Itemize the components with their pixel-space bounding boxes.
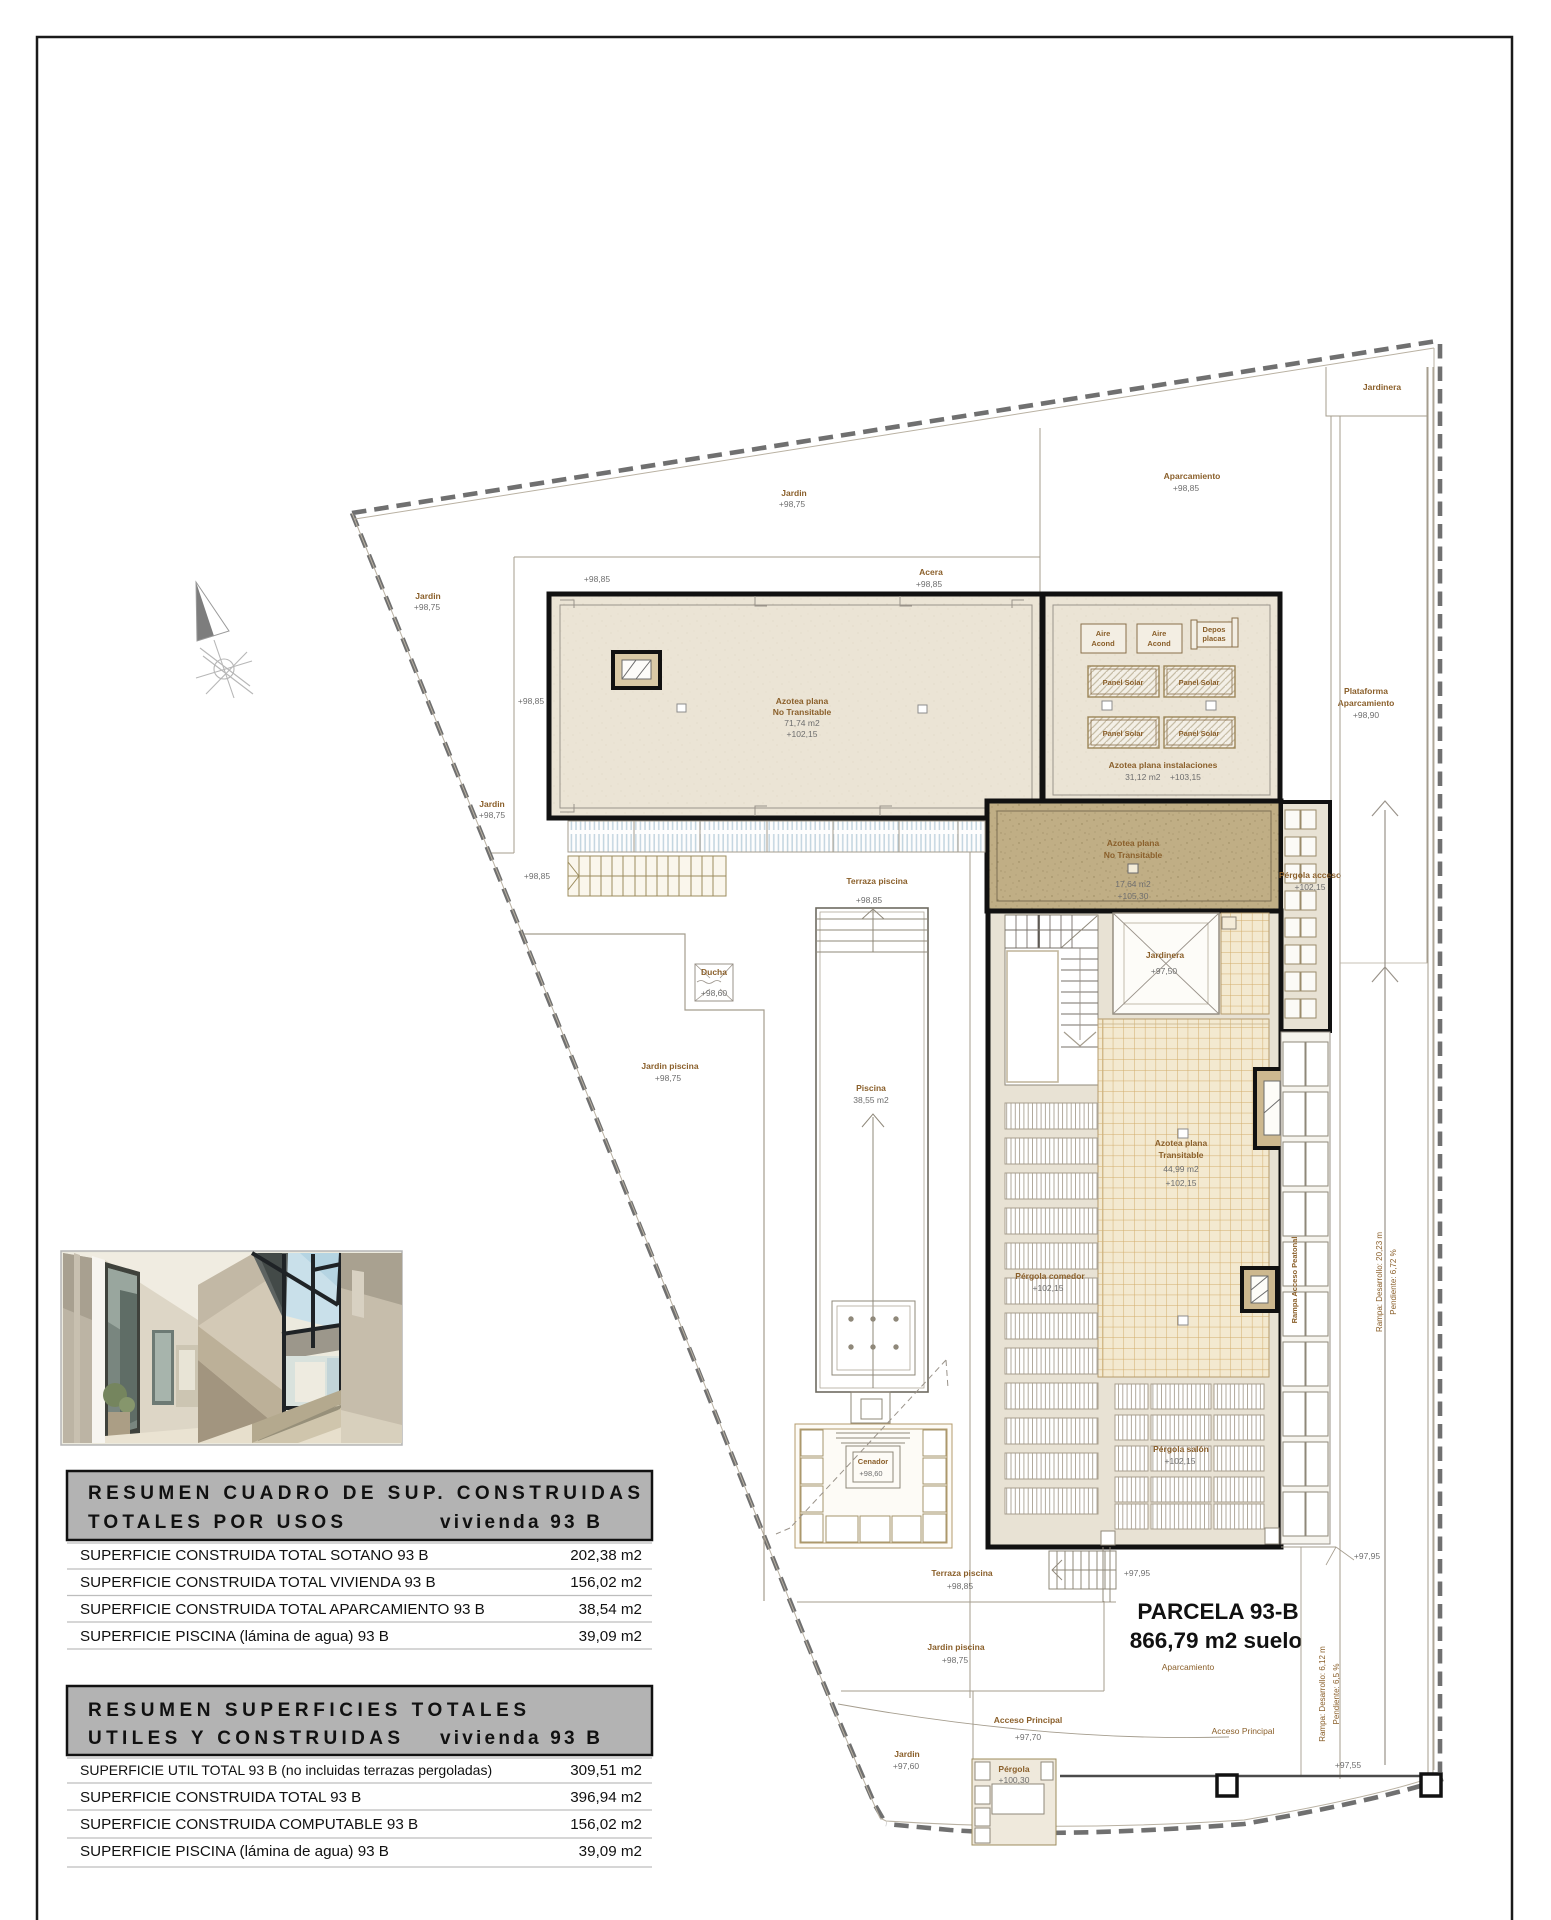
svg-text:38,54 m2: 38,54 m2 <box>579 1601 642 1618</box>
svg-text:+97,70: +97,70 <box>1015 1732 1042 1742</box>
svg-text:Jardinera: Jardinera <box>1363 382 1402 392</box>
svg-text:Ducha: Ducha <box>701 967 727 977</box>
svg-text:Depos: Depos <box>1203 625 1226 634</box>
svg-text:866,79 m2 suelo: 866,79 m2 suelo <box>1130 1628 1303 1653</box>
svg-text:Aparcamiento: Aparcamiento <box>1338 698 1395 708</box>
svg-text:PARCELA 93-B: PARCELA 93-B <box>1137 1599 1298 1624</box>
svg-text:Terraza piscina: Terraza piscina <box>931 1568 993 1578</box>
svg-text:Panel Solar: Panel Solar <box>1103 678 1144 687</box>
svg-text:Aparcamiento: Aparcamiento <box>1162 1662 1215 1672</box>
svg-text:+98,75: +98,75 <box>779 499 806 509</box>
svg-text:31,12 m2 +103,15: 31,12 m2 +103,15 <box>1125 772 1201 782</box>
svg-text:+97,55: +97,55 <box>1335 1760 1362 1770</box>
svg-text:Jardin: Jardin <box>479 799 505 809</box>
svg-text:Acera: Acera <box>919 567 943 577</box>
svg-text:Pendiente: 6,5 %: Pendiente: 6,5 % <box>1332 1664 1341 1725</box>
svg-text:Pérgola comedor: Pérgola comedor <box>1015 1271 1085 1281</box>
svg-text:Rampa Acceso Peatonal: Rampa Acceso Peatonal <box>1290 1237 1299 1324</box>
svg-text:+98,85: +98,85 <box>916 579 943 589</box>
svg-text:Acceso Principal: Acceso Principal <box>1212 1726 1275 1736</box>
svg-text:Pérgola: Pérgola <box>998 1764 1029 1774</box>
svg-text:+102,15: +102,15 <box>1295 882 1326 892</box>
svg-text:SUPERFICIE CONSTRUIDA TOTAL VI: SUPERFICIE CONSTRUIDA TOTAL VIVIENDA 93 … <box>80 1574 436 1591</box>
svg-text:SUPERFICIE UTIL TOTAL 93 B (: SUPERFICIE UTIL TOTAL 93 B (no incluidas… <box>80 1762 492 1778</box>
svg-text:+98,75: +98,75 <box>414 602 441 612</box>
svg-text:+102,15: +102,15 <box>1166 1178 1197 1188</box>
svg-text:Pérgola acceso: Pérgola acceso <box>1279 870 1341 880</box>
svg-text:202,38 m2: 202,38 m2 <box>570 1547 642 1564</box>
svg-text:17,64 m2: 17,64 m2 <box>1115 879 1151 889</box>
svg-text:Jardin piscina: Jardin piscina <box>927 1642 984 1652</box>
svg-text:+98,75: +98,75 <box>655 1073 682 1083</box>
svg-text:Terraza piscina: Terraza piscina <box>846 876 908 886</box>
svg-text:156,02 m2: 156,02 m2 <box>570 1816 642 1833</box>
svg-text:Plataforma: Plataforma <box>1344 686 1388 696</box>
svg-text:+97,95: +97,95 <box>1124 1568 1151 1578</box>
svg-text:Pendiente: 6,72 %: Pendiente: 6,72 % <box>1389 1249 1398 1314</box>
svg-text:39,09 m2: 39,09 m2 <box>579 1628 642 1645</box>
svg-text:38,55 m2: 38,55 m2 <box>853 1095 889 1105</box>
svg-text:396,94 m2: 396,94 m2 <box>570 1789 642 1806</box>
svg-text:Jardinera: Jardinera <box>1146 950 1185 960</box>
svg-text:Cenador: Cenador <box>858 1457 889 1466</box>
svg-text:Panel Solar: Panel Solar <box>1179 678 1220 687</box>
svg-text:Azotea plana: Azotea plana <box>776 696 829 706</box>
svg-text:Panel Solar: Panel Solar <box>1103 729 1144 738</box>
svg-text:SUPERFICIE CONSTRUIDA TOTAL S: SUPERFICIE CONSTRUIDA TOTAL SOTANO 93 B <box>80 1547 429 1564</box>
svg-text:Acceso Principal: Acceso Principal <box>994 1715 1063 1725</box>
svg-text:+98,60: +98,60 <box>701 988 728 998</box>
svg-text:+98,75: +98,75 <box>479 810 506 820</box>
svg-text:Acond: Acond <box>1147 639 1171 648</box>
svg-text:+98,85: +98,85 <box>856 895 883 905</box>
svg-text:+105,30: +105,30 <box>1118 891 1149 901</box>
svg-text:+97,95: +97,95 <box>1354 1551 1381 1561</box>
svg-text:+98,85: +98,85 <box>947 1581 974 1591</box>
svg-text:SUPERFICIE PISCINA (lámina de: SUPERFICIE PISCINA (lámina de agua) 93 B <box>80 1628 389 1645</box>
svg-text:Aparcamiento: Aparcamiento <box>1164 471 1221 481</box>
svg-text:Piscina: Piscina <box>856 1083 886 1093</box>
svg-text:Panel Solar: Panel Solar <box>1179 729 1220 738</box>
svg-text:placas: placas <box>1202 634 1225 643</box>
svg-text:TOTALES POR USOS: TOTALES POR USOS <box>88 1512 343 1533</box>
svg-text:Transitable: Transitable <box>1159 1150 1204 1160</box>
svg-text:+98,85: +98,85 <box>584 574 611 584</box>
svg-text:Azotea plana instalaciones: Azotea plana instalaciones <box>1109 760 1218 770</box>
svg-text:Rampa: Desarrollo: 20,23 m: Rampa: Desarrollo: 20,23 m <box>1375 1232 1384 1332</box>
svg-text:156,02 m2: 156,02 m2 <box>570 1574 642 1591</box>
svg-text:71,74 m2: 71,74 m2 <box>784 718 820 728</box>
svg-text:+98,90: +98,90 <box>1353 710 1380 720</box>
svg-text:+102,15: +102,15 <box>1165 1456 1196 1466</box>
svg-text:+100,30: +100,30 <box>999 1775 1030 1785</box>
svg-text:Jardin piscina: Jardin piscina <box>641 1061 698 1071</box>
svg-text:+97,50: +97,50 <box>1151 966 1178 976</box>
svg-text:+102,15: +102,15 <box>1033 1283 1064 1293</box>
svg-text:Aire: Aire <box>1096 629 1111 638</box>
svg-text:+98,85: +98,85 <box>518 696 545 706</box>
svg-text:Aire: Aire <box>1152 629 1167 638</box>
svg-text:No Transitable: No Transitable <box>1104 850 1163 860</box>
svg-text:39,09 m2: 39,09 m2 <box>579 1843 642 1860</box>
svg-text:Jardin: Jardin <box>894 1749 920 1759</box>
svg-text:+98,60: +98,60 <box>859 1469 882 1478</box>
svg-text:+98,85: +98,85 <box>1173 483 1200 493</box>
svg-text:+98,75: +98,75 <box>942 1655 969 1665</box>
svg-text:Pérgola salón: Pérgola salón <box>1153 1444 1209 1454</box>
svg-text:Rampa: Desarrollo: 6,12 m: Rampa: Desarrollo: 6,12 m <box>1318 1646 1327 1742</box>
svg-text:SUPERFICIE CONSTRUIDA TOTAL 9: SUPERFICIE CONSTRUIDA TOTAL 93 B <box>80 1789 361 1806</box>
svg-text:+98,85: +98,85 <box>524 871 551 881</box>
svg-text:Acond: Acond <box>1091 639 1115 648</box>
svg-text:No Transitable: No Transitable <box>773 707 832 717</box>
svg-text:Azotea plana: Azotea plana <box>1155 1138 1208 1148</box>
svg-text:Jardin: Jardin <box>781 488 807 498</box>
svg-text:44,99 m2: 44,99 m2 <box>1163 1164 1199 1174</box>
svg-text:SUPERFICIE CONSTRUIDA COMPUTAB: SUPERFICIE CONSTRUIDA COMPUTABLE 93 B <box>80 1816 418 1833</box>
svg-text:+97,60: +97,60 <box>893 1761 920 1771</box>
svg-text:Jardin: Jardin <box>415 591 441 601</box>
svg-text:SUPERFICIE CONSTRUIDA TOTAL AP: SUPERFICIE CONSTRUIDA TOTAL APARCAMIENTO… <box>80 1601 485 1618</box>
svg-text:UTILES Y CONSTRUIDAS: UTILES Y CONSTRUIDAS <box>88 1728 400 1749</box>
svg-text:+102,15: +102,15 <box>787 729 818 739</box>
svg-text:RESUMEN CUADRO DE SUP. CONSTRU: RESUMEN CUADRO DE SUP. CONSTRUIDAS <box>88 1483 640 1504</box>
svg-text:309,51 m2: 309,51 m2 <box>570 1762 642 1779</box>
svg-text:Azotea plana: Azotea plana <box>1107 838 1160 848</box>
svg-text:SUPERFICIE PISCINA (lámina de: SUPERFICIE PISCINA (lámina de agua) 93 B <box>80 1843 389 1860</box>
